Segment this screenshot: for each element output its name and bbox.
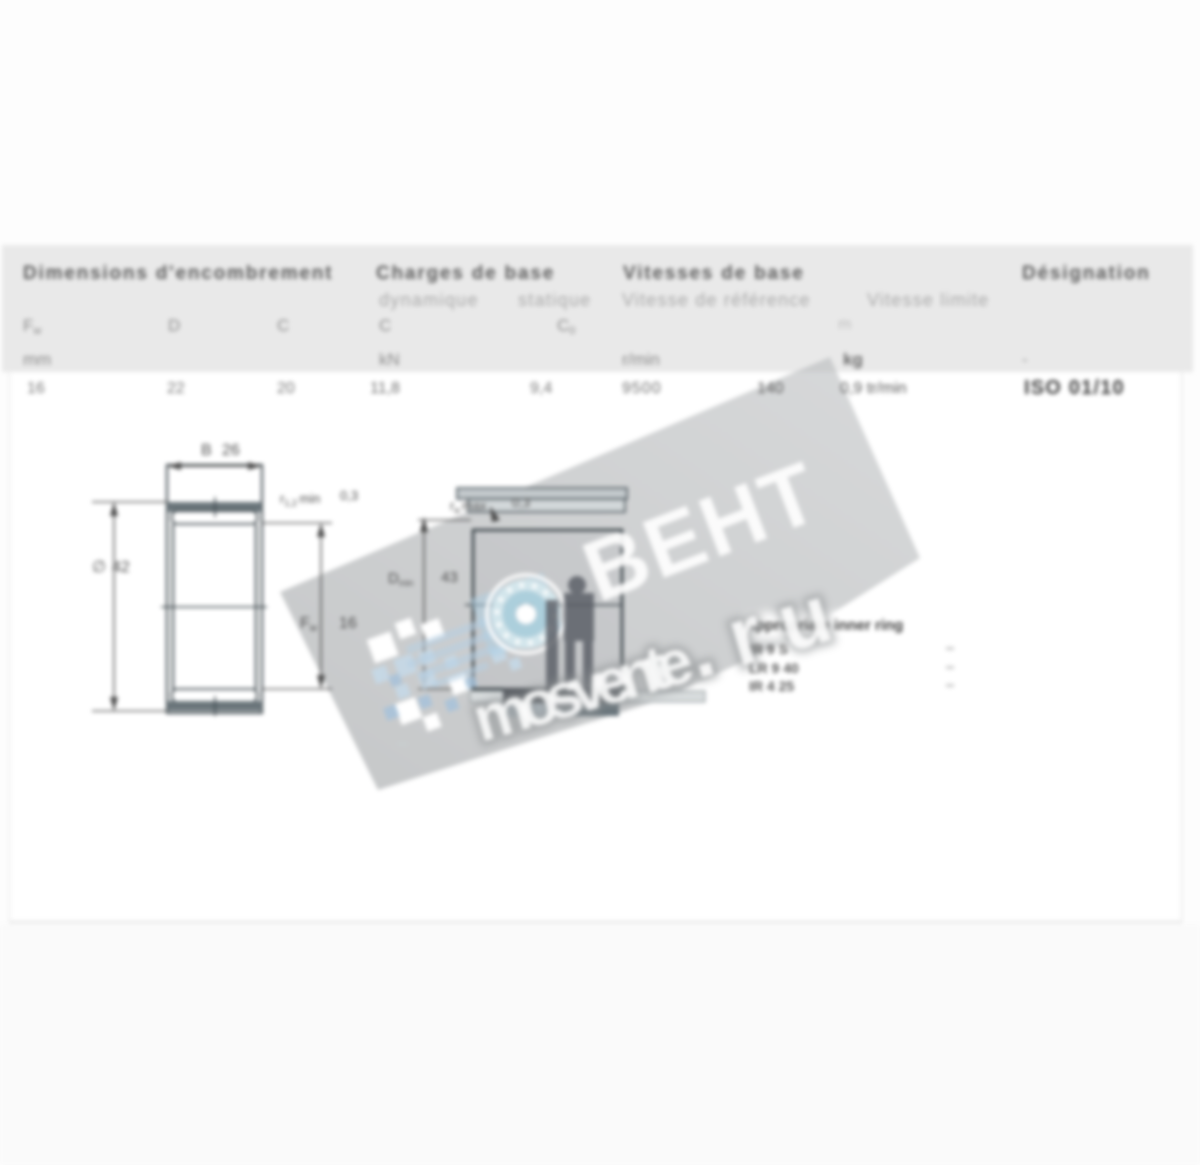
svg-text:.ru: .ru xyxy=(676,568,841,696)
svg-text:mosvente: mosvente xyxy=(465,625,701,755)
